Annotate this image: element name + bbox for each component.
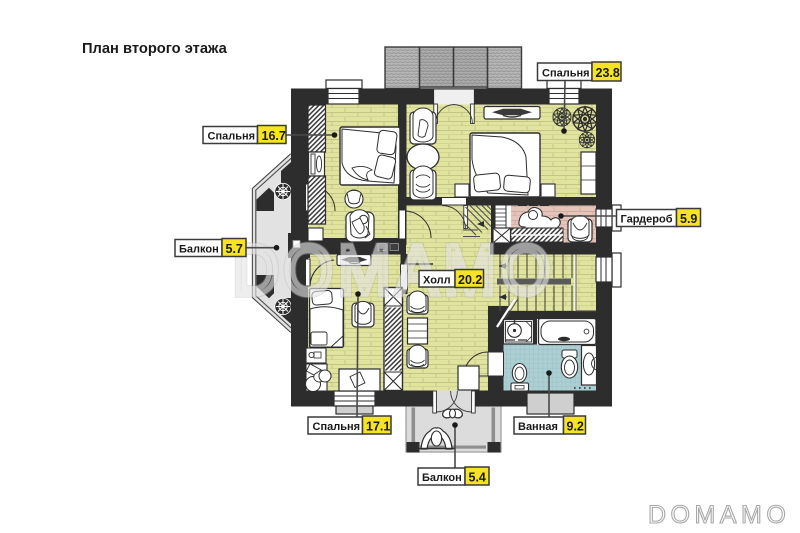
- svg-text:Спальня: Спальня: [542, 68, 590, 80]
- svg-text:17.1: 17.1: [366, 420, 390, 434]
- svg-text:План второго этажа: План второго этажа: [82, 41, 228, 57]
- svg-text:Балкон: Балкон: [422, 472, 462, 484]
- svg-text:5.7: 5.7: [226, 242, 243, 256]
- svg-text:Ванная: Ванная: [518, 421, 558, 433]
- svg-text:DOMAMO: DOMAMO: [648, 501, 790, 529]
- svg-text:Спальня: Спальня: [313, 421, 361, 433]
- svg-text:Балкон: Балкон: [179, 244, 219, 256]
- svg-text:16.7: 16.7: [262, 129, 286, 143]
- svg-text:Холл: Холл: [423, 275, 451, 287]
- svg-text:20.2: 20.2: [458, 273, 482, 287]
- svg-text:9.2: 9.2: [567, 420, 584, 434]
- svg-text:23.8: 23.8: [596, 66, 620, 80]
- svg-text:DOMAMO: DOMAMO: [233, 232, 556, 310]
- svg-text:Гардероб: Гардероб: [621, 214, 673, 226]
- svg-text:5.9: 5.9: [680, 212, 697, 226]
- svg-text:Спальня: Спальня: [208, 131, 256, 143]
- svg-text:5.4: 5.4: [469, 471, 486, 485]
